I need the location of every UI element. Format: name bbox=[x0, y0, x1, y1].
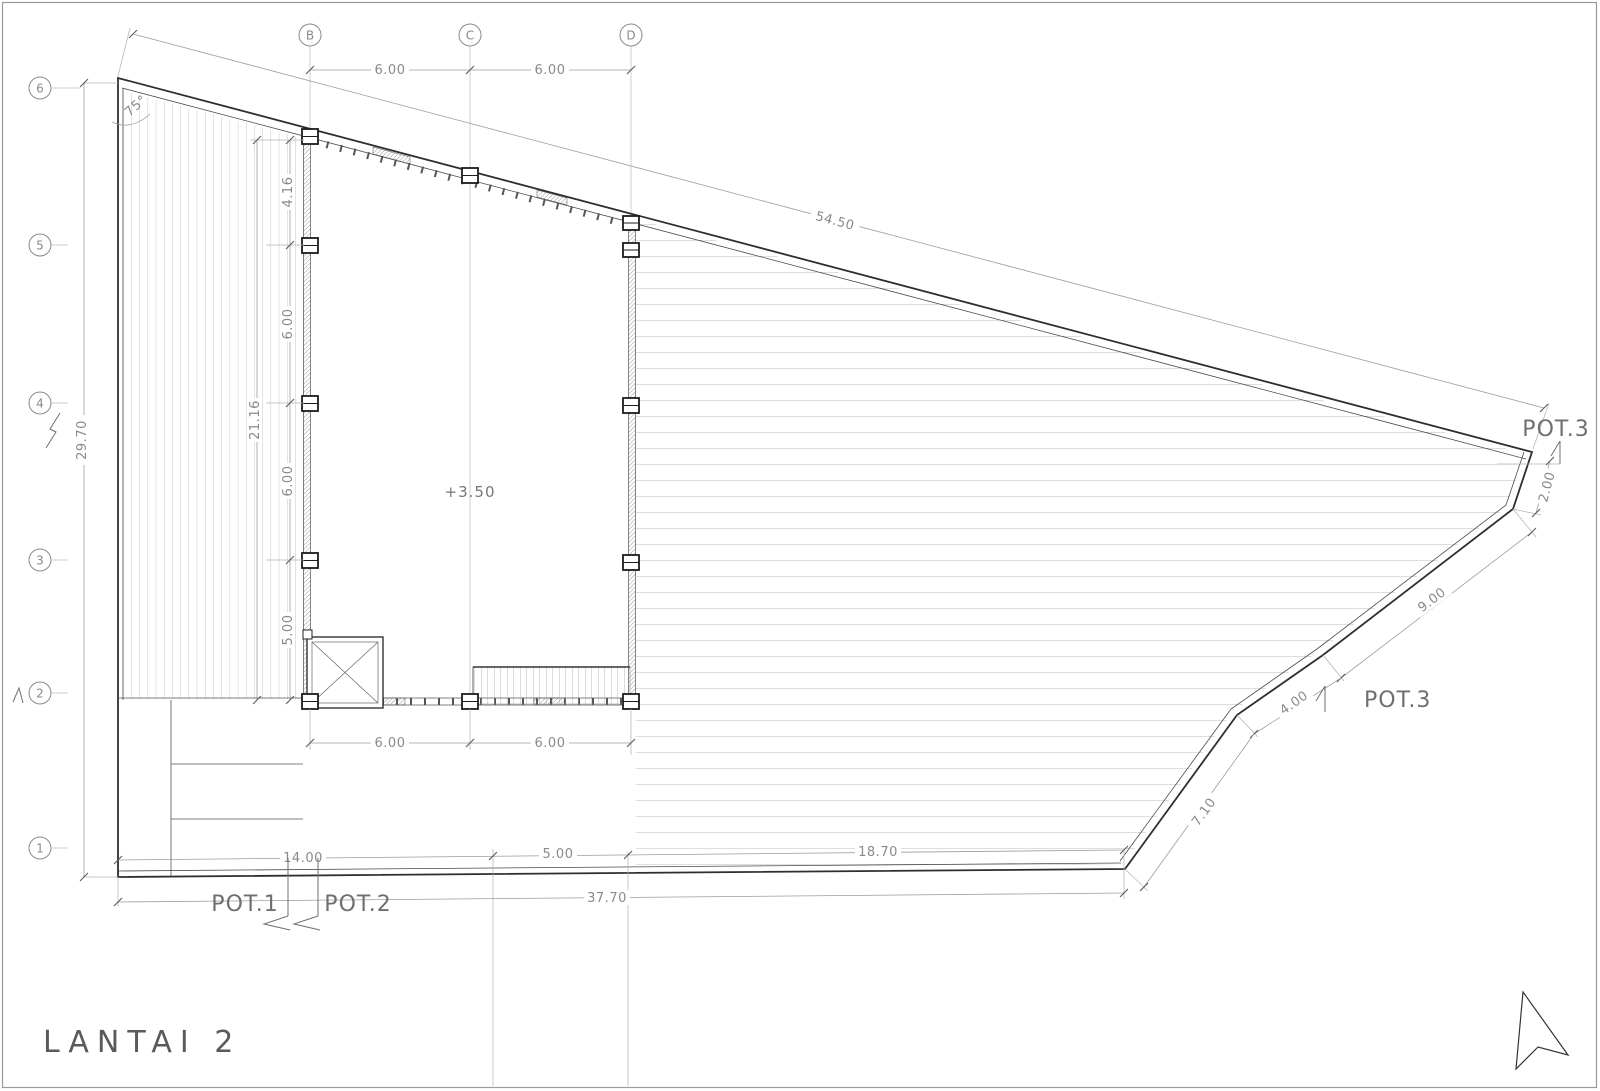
dim-bottom-bay-1: 6.00 bbox=[375, 736, 406, 751]
grid-bubble-4-label: 4 bbox=[36, 397, 44, 411]
dim-inner-4: 5.00 bbox=[281, 615, 296, 646]
dim-top-bay-1: 6.00 bbox=[375, 63, 406, 78]
row2-hatch-segment-1 bbox=[382, 698, 405, 705]
stair-balustrade-strip bbox=[473, 667, 630, 704]
drawing-title: LANTAI 2 bbox=[43, 1025, 241, 1060]
wall-grid-D bbox=[629, 220, 636, 702]
left-roof-hatch bbox=[121, 90, 306, 699]
grid-bubble-5-label: 5 bbox=[36, 239, 44, 253]
dim-bottom-1: 14.00 bbox=[283, 851, 323, 866]
dim-inner-1: 4.16 bbox=[281, 177, 296, 208]
dim-bottom-total: 37.70 bbox=[587, 891, 627, 906]
dim-inner-3: 6.00 bbox=[281, 466, 296, 497]
dim-left-total: 29.70 bbox=[75, 420, 90, 460]
dim-top-bay-2: 6.00 bbox=[535, 63, 566, 78]
grid-bubble-6-label: 6 bbox=[36, 82, 44, 96]
wall-grid-B bbox=[304, 137, 311, 700]
section-label-pot3-top: POT.3 bbox=[1522, 417, 1589, 442]
dim-inner-total: 21.16 bbox=[248, 400, 263, 440]
floor-plan-canvas: B C D 6 5 4 3 2 1 6.00 6.00 bbox=[0, 0, 1600, 1091]
section-label-pot1: POT.1 bbox=[211, 892, 278, 917]
drawing-sheet: B C D 6 5 4 3 2 1 6.00 6.00 bbox=[0, 0, 1600, 1091]
grid-bubble-B-label: B bbox=[306, 29, 314, 43]
grid-bubble-C-label: C bbox=[466, 29, 474, 43]
dim-bottom-2: 5.00 bbox=[543, 847, 574, 862]
level-annotation: +3.50 bbox=[445, 483, 496, 501]
grid-bubble-D-label: D bbox=[626, 29, 635, 43]
grid-bubble-1-label: 1 bbox=[36, 842, 44, 856]
dim-inner-2: 6.00 bbox=[281, 309, 296, 340]
column-box bbox=[302, 129, 318, 144]
grid-bubble-2-label: 2 bbox=[36, 687, 44, 701]
section-label-pot3-side: POT.3 bbox=[1364, 688, 1431, 713]
dim-bottom-bay-2: 6.00 bbox=[535, 736, 566, 751]
section-label-pot2: POT.2 bbox=[324, 892, 391, 917]
grid-bubble-3-label: 3 bbox=[36, 554, 44, 568]
dim-bottom-3: 18.70 bbox=[858, 845, 898, 860]
